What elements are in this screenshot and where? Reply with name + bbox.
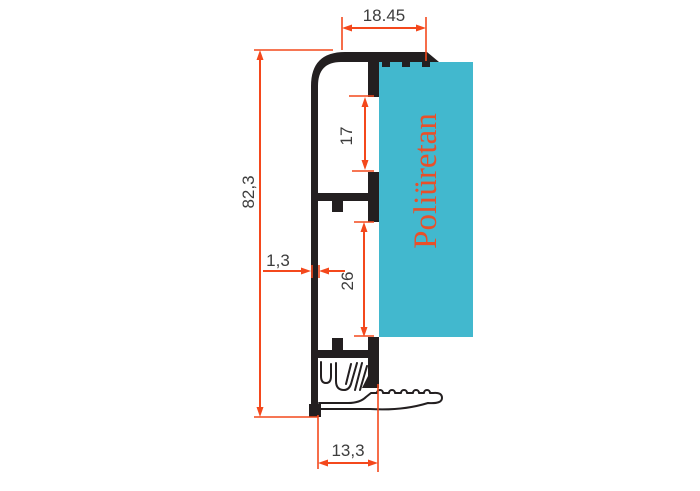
profile-bottom-web (318, 350, 379, 358)
dim-bottom-width-arrow-left (318, 460, 328, 467)
dim-overall-height-arrow-bottom (257, 407, 264, 417)
dim-overall-height-arrow-top (257, 50, 264, 60)
profile-foot (309, 404, 321, 417)
dim-wall-thickness-arrow-left (301, 268, 311, 275)
dim-bottom-width: 13,3 (318, 384, 378, 472)
profile-tab-upper (332, 200, 343, 212)
dim-lower-pocket-label: 26 (338, 272, 357, 291)
dim-wall-thickness-label: 1,3 (266, 251, 290, 270)
drawing-svg: 18.45 17 26 82,3 (0, 0, 700, 491)
profile-upper-stub (368, 62, 379, 97)
dim-upper-pocket-arrow-bottom (362, 160, 369, 170)
seal-wiper-fin (319, 390, 442, 409)
dim-lower-pocket: 26 (338, 222, 374, 337)
dim-overall-height-label: 82,3 (239, 175, 258, 208)
profile-tab-lower (332, 338, 343, 351)
dim-wall-thickness-arrow-right (319, 268, 329, 275)
seal-middle-u (336, 363, 357, 390)
seal-left-loop (321, 362, 331, 383)
material-label: Poliüretan (408, 113, 444, 249)
dim-upper-pocket-label: 17 (337, 127, 356, 146)
rubber-seal (319, 362, 442, 409)
profile-tooth-1 (382, 62, 390, 67)
profile-mid-wall (368, 172, 379, 222)
seal-inner-diagonal (346, 364, 351, 384)
profile-tooth-3 (422, 62, 430, 67)
dim-wall-thickness: 1,3 (263, 251, 345, 278)
dim-lower-pocket-arrow-top (361, 222, 368, 232)
dim-top-width-arrow-left (342, 25, 352, 32)
dim-overall-height: 82,3 (239, 50, 333, 417)
profile-mid-web (318, 193, 368, 201)
dim-upper-pocket: 17 (337, 96, 374, 171)
dim-bottom-width-label: 13,3 (331, 441, 364, 460)
technical-drawing: 18.45 17 26 82,3 (0, 0, 700, 491)
profile-tooth-2 (402, 62, 410, 67)
dim-upper-pocket-arrow-top (362, 97, 369, 107)
dim-bottom-width-arrow-right (368, 460, 378, 467)
dim-top-width-arrow-right (416, 25, 426, 32)
dim-top-width-label: 18.45 (363, 6, 406, 25)
